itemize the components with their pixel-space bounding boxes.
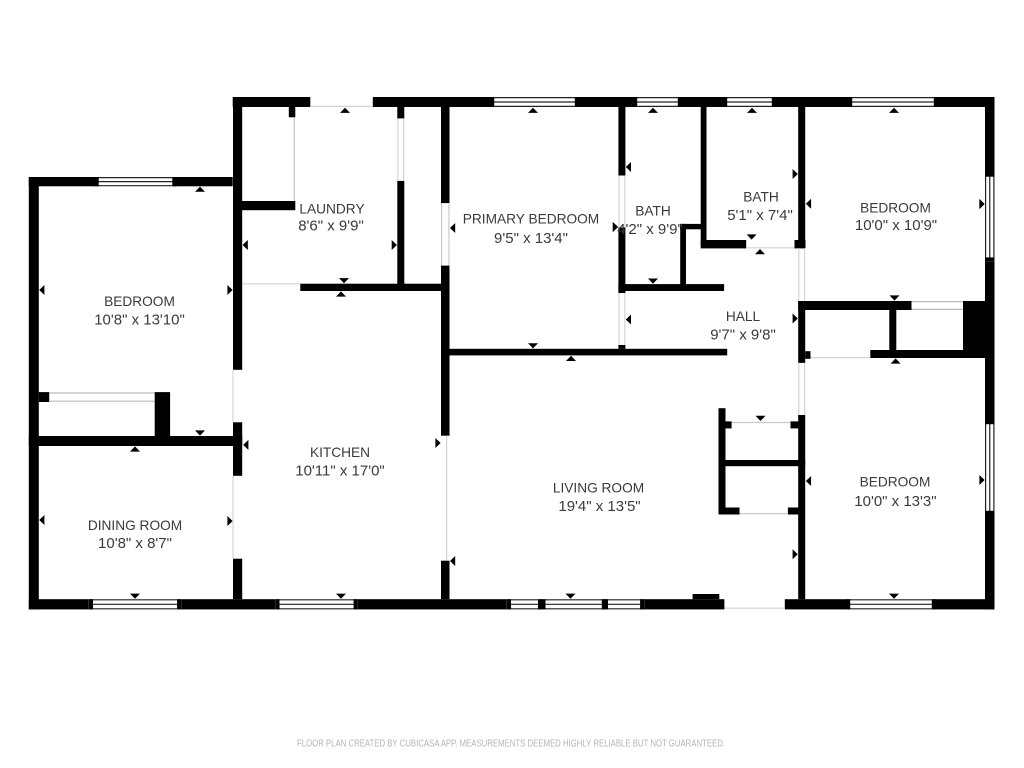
svg-text:10'0" x 13'3": 10'0" x 13'3" [854,493,936,510]
svg-text:BATH: BATH [635,203,671,218]
svg-text:KITCHEN: KITCHEN [310,445,370,460]
svg-text:BATH: BATH [743,189,779,204]
svg-text:HALL: HALL [726,309,761,324]
svg-text:10'11" x 17'0": 10'11" x 17'0" [295,463,385,480]
svg-text:5'1" x 7'4": 5'1" x 7'4" [727,207,793,224]
svg-text:BEDROOM: BEDROOM [104,294,175,309]
svg-text:LAUNDRY: LAUNDRY [299,201,364,216]
svg-text:BEDROOM: BEDROOM [860,474,931,489]
svg-text:DINING ROOM: DINING ROOM [88,518,182,533]
svg-text:8'6" x 9'9": 8'6" x 9'9" [298,217,364,234]
svg-text:FLOOR PLAN CREATED BY CUBICASA: FLOOR PLAN CREATED BY CUBICASA APP. MEAS… [297,739,725,750]
svg-text:4'2" x 9'9": 4'2" x 9'9" [617,221,683,238]
svg-text:10'0" x 10'9": 10'0" x 10'9" [855,217,937,234]
svg-text:BEDROOM: BEDROOM [860,200,931,215]
svg-text:19'4" x 13'5": 19'4" x 13'5" [558,498,640,515]
svg-text:LIVING ROOM: LIVING ROOM [553,480,644,495]
svg-text:9'7" x 9'8": 9'7" x 9'8" [710,326,776,343]
svg-text:PRIMARY BEDROOM: PRIMARY BEDROOM [463,211,599,226]
svg-text:10'8" x 13'10": 10'8" x 13'10" [94,312,185,329]
svg-text:9'5" x 13'4": 9'5" x 13'4" [494,230,568,247]
svg-text:10'8" x 8'7": 10'8" x 8'7" [98,535,172,552]
